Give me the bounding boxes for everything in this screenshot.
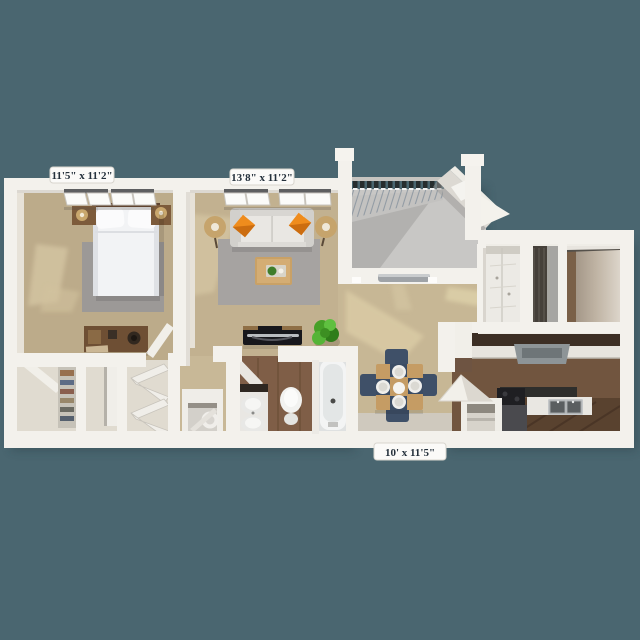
svg-text:11'5" x 11'2": 11'5" x 11'2" bbox=[51, 170, 112, 182]
svg-text:10' x 11'5": 10' x 11'5" bbox=[385, 447, 435, 459]
svg-text:13'8" x 11'2": 13'8" x 11'2" bbox=[231, 172, 293, 184]
